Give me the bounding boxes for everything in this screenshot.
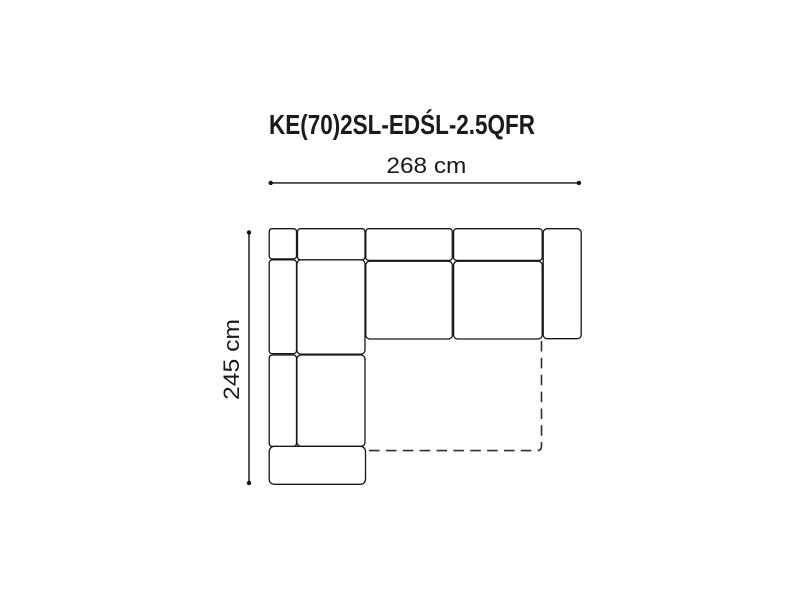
svg-text:268 cm: 268 cm (386, 153, 466, 178)
svg-text:245 cm: 245 cm (219, 319, 244, 400)
svg-text:KE(70)2SL-EDŚL-2.5QFR: KE(70)2SL-EDŚL-2.5QFR (269, 109, 535, 140)
